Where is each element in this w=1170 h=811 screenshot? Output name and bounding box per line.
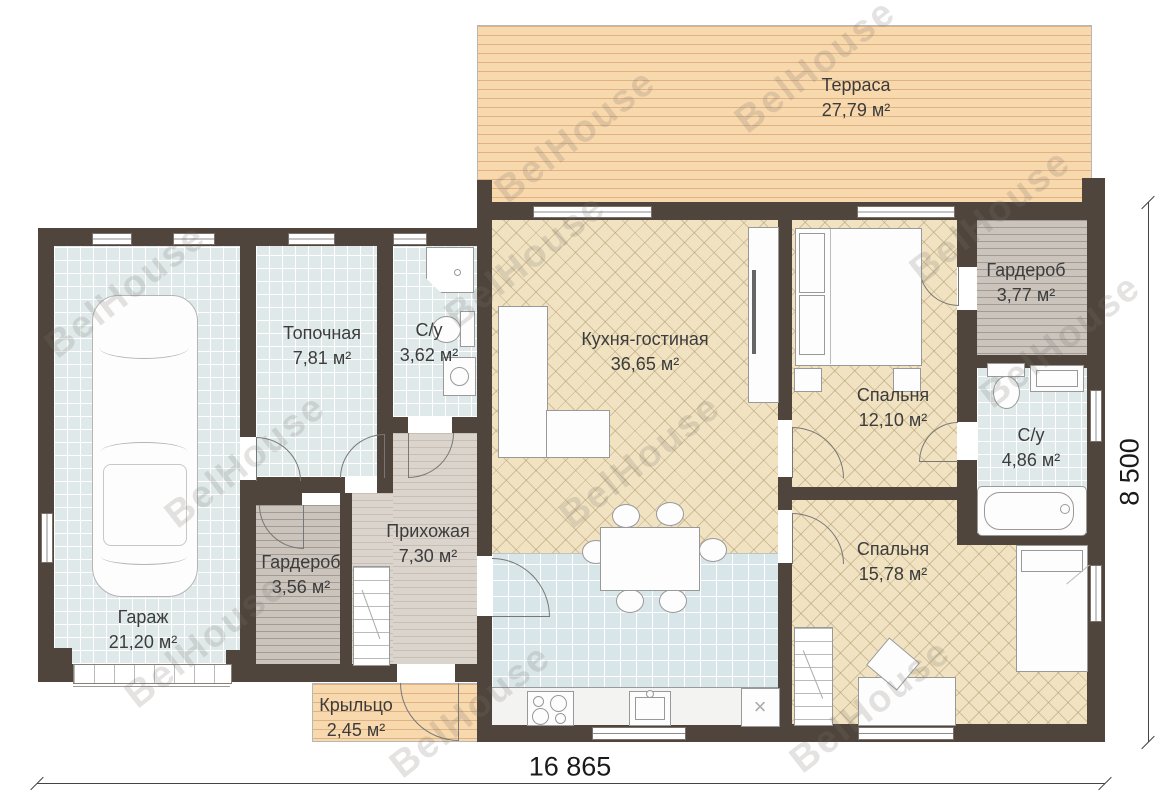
car-roof	[103, 464, 187, 546]
room-name: Гардероб	[261, 550, 340, 575]
dimension-height-label: 8 500	[1115, 438, 1146, 506]
room-area: 3,77 м²	[986, 283, 1065, 308]
room-area: 12,10 м²	[857, 408, 929, 433]
wall	[38, 648, 72, 682]
room-name: Спальня	[857, 537, 929, 562]
hatch-x-icon: ×	[754, 694, 767, 720]
wall	[230, 664, 397, 682]
desk	[858, 677, 956, 726]
dimension-line-right	[1148, 202, 1149, 742]
garage-door	[73, 664, 232, 684]
kitchen-sink	[629, 691, 671, 726]
blanket-line	[830, 229, 831, 364]
fridge: ×	[741, 688, 780, 727]
window	[592, 727, 686, 740]
pillow	[799, 233, 825, 293]
window	[857, 206, 955, 218]
wardrobe-unit	[794, 627, 833, 726]
room-label-porch: Крыльцо 2,45 м²	[319, 693, 392, 743]
window	[1090, 390, 1102, 442]
room-area: 36,65 м²	[581, 352, 708, 377]
room-label-bathroom2: С/у 4,86 м²	[1002, 423, 1060, 473]
chair	[616, 589, 644, 613]
car-hood-line	[99, 336, 189, 359]
window	[288, 233, 335, 245]
hanger-line	[803, 650, 823, 699]
wall	[957, 220, 977, 267]
dimension-width-label: 16 865	[529, 752, 612, 783]
sofa-seat	[546, 410, 610, 458]
sink-basin	[1036, 370, 1078, 387]
window	[533, 206, 652, 218]
chair	[659, 589, 687, 613]
wall	[778, 220, 792, 420]
room-name: Терраса	[821, 73, 890, 98]
bath-drain	[1060, 504, 1070, 514]
burner	[550, 695, 567, 712]
room-name: Кухня-гостиная	[581, 327, 708, 352]
wall	[778, 477, 792, 510]
room-name: С/у	[400, 318, 458, 343]
room-label-wardrobe2: Гардероб 3,77 м²	[986, 258, 1065, 308]
washer-drum	[450, 367, 469, 386]
chair	[699, 538, 727, 562]
wall	[792, 487, 957, 500]
shower-drain	[454, 269, 461, 276]
car-top-view	[92, 295, 198, 597]
room-name: Гараж	[109, 605, 177, 630]
bathtub	[977, 486, 1087, 536]
double-bed	[795, 228, 922, 366]
faucet	[646, 690, 654, 698]
pillow	[799, 295, 825, 355]
sofa-back	[498, 306, 548, 458]
burner	[532, 708, 549, 725]
wall	[477, 724, 1105, 742]
wall	[385, 477, 393, 493]
room-name: Спальня	[857, 383, 929, 408]
sink-basin	[635, 697, 665, 720]
wall	[778, 563, 792, 724]
bathroom-sink	[1030, 365, 1084, 392]
terrace-deck	[477, 25, 1092, 205]
chair	[656, 502, 684, 526]
dimension-line-bottom	[37, 783, 1105, 784]
room-label-bathroom1: С/у 3,62 м²	[400, 318, 458, 368]
room-area: 3,56 м²	[261, 575, 340, 600]
room-name: Топочная	[283, 321, 361, 346]
wall	[477, 180, 492, 556]
nightstand	[794, 368, 822, 392]
window	[173, 233, 215, 245]
room-label-garage: Гараж 21,20 м²	[109, 605, 177, 655]
room-area: 27,79 м²	[821, 98, 890, 123]
dining-table	[600, 527, 700, 591]
burner	[555, 713, 566, 724]
tv-icon	[752, 270, 756, 354]
wall	[1082, 178, 1105, 204]
room-area: 7,81 м²	[283, 346, 361, 371]
room-name: Гардероб	[986, 258, 1065, 283]
room-name: С/у	[1002, 423, 1060, 448]
room-name: Прихожая	[386, 519, 469, 544]
wall	[256, 493, 302, 505]
wall	[240, 246, 256, 437]
pillow	[1021, 550, 1083, 572]
room-area: 3,62 м²	[400, 343, 458, 368]
wall	[1087, 202, 1105, 742]
floor-plan: × Терраса 27,79 м² Гараж 21,20 м² Топочн…	[0, 0, 1170, 811]
room-label-terrace: Терраса 27,79 м²	[821, 73, 890, 123]
room-label-hallway: Прихожая 7,30 м²	[386, 519, 469, 569]
wall	[240, 480, 256, 664]
window	[393, 233, 427, 245]
room-name: Крыльцо	[319, 693, 392, 718]
burner	[533, 696, 544, 707]
closet-unit	[353, 566, 390, 666]
garage-door-line	[73, 686, 230, 687]
toilet-tank	[460, 311, 475, 347]
room-label-bedroom2: Спальня 15,78 м²	[857, 537, 929, 587]
wall	[393, 417, 408, 433]
window	[1090, 565, 1102, 622]
car-windshield-line	[101, 442, 187, 461]
hanger-line	[362, 590, 381, 639]
stove	[527, 691, 574, 726]
car-rear-line	[101, 548, 187, 565]
room-label-wardrobe1: Гардероб 3,56 м²	[261, 550, 340, 600]
wall	[957, 310, 977, 422]
room-area: 7,30 м²	[386, 544, 469, 569]
room-label-kitchen-living: Кухня-гостиная 36,65 м²	[581, 327, 708, 377]
window	[858, 727, 954, 740]
room-label-boiler: Топочная 7,81 м²	[283, 321, 361, 371]
room-area: 2,45 м²	[319, 718, 392, 743]
window	[92, 233, 132, 245]
wall	[340, 493, 352, 682]
wall	[38, 228, 54, 682]
room-area: 15,78 м²	[857, 562, 929, 587]
chair	[612, 504, 640, 528]
room-area: 4,86 м²	[1002, 448, 1060, 473]
room-area: 21,20 м²	[109, 630, 177, 655]
toilet-tank	[987, 363, 1025, 377]
window	[41, 513, 53, 563]
single-bed	[1016, 545, 1088, 672]
toilet-bowl	[993, 376, 1020, 409]
room-label-bedroom1: Спальня 12,10 м²	[857, 383, 929, 433]
wall	[452, 417, 477, 433]
